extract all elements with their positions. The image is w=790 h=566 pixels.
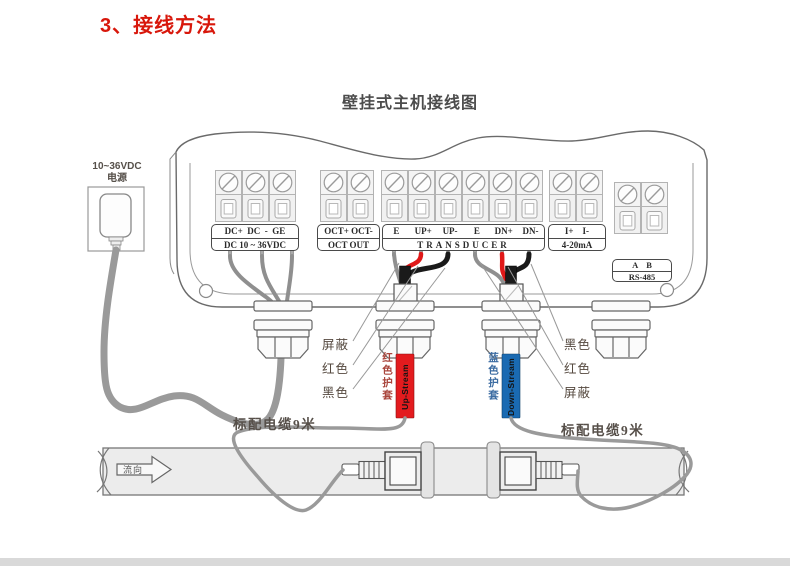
transducer-label-box: E UP+ UP- E DN+ DN- TRANSDUCER xyxy=(382,224,545,251)
pin-label-dn-plus: DN+ xyxy=(490,225,517,238)
pin-label-up-plus: UP+ xyxy=(410,225,437,238)
flow-label: 流向 xyxy=(123,464,143,475)
cable-gland-spare xyxy=(592,301,650,358)
dc-terminal-block xyxy=(216,171,296,222)
callout-red-right: 红色 xyxy=(564,358,594,374)
dc-label-box: DC+ DC - GE DC 10 ~ 36VDC xyxy=(211,224,299,251)
current-label-row2: 4-20mA xyxy=(549,239,605,251)
oct-label-row1: OCT+ OCT- xyxy=(318,225,379,239)
upstream-clamp-strap xyxy=(421,442,434,498)
cable-gland-upstream xyxy=(376,301,434,358)
dc-label-row2: DC 10 ~ 36VDC xyxy=(212,239,298,251)
rs485-label-row1: A B xyxy=(613,260,671,272)
oct-terminal-block xyxy=(321,171,374,222)
oct-label-box: OCT+ OCT- OCT OUT xyxy=(317,224,380,251)
callout-black-right: 黑色 xyxy=(564,334,594,350)
rs485-label-row2: RS-485 xyxy=(613,272,671,282)
wiring-diagram-svg: 流向 xyxy=(0,0,790,566)
current-label-box: I+ I- 4-20mA xyxy=(548,224,606,251)
callout-red-left: 红色 xyxy=(322,358,352,374)
power-voltage-text: 10~36VDC xyxy=(78,161,156,173)
pin-label-e-up: E xyxy=(383,225,410,238)
cable-gland-power xyxy=(254,301,312,358)
mount-hole-right xyxy=(661,284,674,297)
callout-black-left: 黑色 xyxy=(322,382,352,398)
pin-label-dn-minus: DN- xyxy=(517,225,544,238)
diagram-subtitle: 壁挂式主机接线图 xyxy=(290,89,530,113)
page-title: 3、接线方法 xyxy=(100,9,217,38)
downstream-clamp-strap xyxy=(487,442,500,498)
rs485-label-box: A B RS-485 xyxy=(612,259,672,282)
pin-label-e-dn: E xyxy=(463,225,490,238)
upstream-sleeve-label: 红色护套 xyxy=(379,352,394,418)
mount-hole-left xyxy=(200,285,213,298)
downstream-sleeve-label: 蓝色护套 xyxy=(485,352,500,418)
current-label-row1: I+ I- xyxy=(549,225,605,239)
bottom-strip xyxy=(0,558,790,566)
cable-length-label-right: 标配电缆9米 xyxy=(561,419,644,439)
oct-label-row2: OCT OUT xyxy=(318,239,379,251)
transducer-label-row2: TRANSDUCER xyxy=(383,239,544,251)
pin-label-up-minus: UP- xyxy=(437,225,464,238)
callout-shield-left: 屏蔽 xyxy=(322,334,352,350)
wiring-diagram-page: 流向 xyxy=(0,0,790,566)
rs485-terminal-block xyxy=(615,183,668,234)
current-terminal-block xyxy=(550,171,603,222)
dc-label-row1: DC+ DC - GE xyxy=(212,225,298,239)
enclosure-left-facet xyxy=(170,152,176,274)
callout-shield-right: 屏蔽 xyxy=(564,382,594,398)
transducer-pin-labels: E UP+ UP- E DN+ DN- xyxy=(383,225,544,239)
power-plug xyxy=(88,187,144,251)
downstream-sleeve-tag: Down-Stream xyxy=(506,355,516,419)
power-source-text: 电源 xyxy=(78,173,156,185)
transducer-terminal-block xyxy=(382,171,543,222)
cable-length-label-left: 标配电缆9米 xyxy=(233,413,316,433)
power-supply-label: 10~36VDC 电源 xyxy=(78,161,156,185)
upstream-sleeve-tag: Up-Stream xyxy=(400,357,410,417)
